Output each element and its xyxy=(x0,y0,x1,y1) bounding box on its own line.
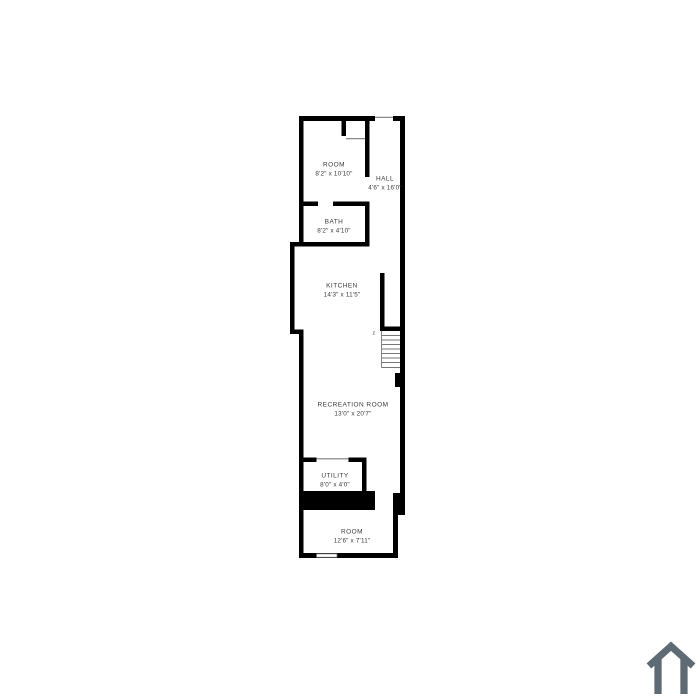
floorplan-canvas: z ROOM 8'2" x 10'10" HALL 4'6" x 16'0" B… xyxy=(0,0,700,700)
wall-left-upper xyxy=(299,116,304,247)
wall-room-hall-divider-lower xyxy=(365,202,370,247)
room-name: UTILITY xyxy=(320,473,350,482)
room-name: ROOM xyxy=(334,529,371,538)
wall-utility-right xyxy=(362,458,367,492)
stair-treads xyxy=(382,331,401,368)
wall-left-middle xyxy=(299,330,304,492)
room-name: RECREATION ROOM xyxy=(318,402,389,411)
room-label-recreation: RECREATION ROOM 13'0" x 20'7" xyxy=(318,402,389,419)
room-name: ROOM xyxy=(315,162,352,171)
room-dims: 14'3" x 11'5" xyxy=(324,291,361,300)
wall-left-lower xyxy=(299,510,304,558)
floorplan-drawing: z xyxy=(0,0,700,700)
wall-room-bath-left xyxy=(299,202,318,207)
wall-left-kitchen-jut xyxy=(290,242,295,334)
wall-closet-stub xyxy=(342,116,347,136)
wall-utility-top-left xyxy=(304,458,317,463)
room-label-bedroom-top: ROOM 8'2" x 10'10" xyxy=(315,162,352,179)
room-name: HALL xyxy=(368,176,401,185)
stair-direction-mark: z xyxy=(373,331,376,337)
wall-stair-landing-bottom xyxy=(380,327,400,332)
wall-right-lower xyxy=(393,515,398,558)
room-label-hall: HALL 4'6" x 16'0" xyxy=(368,176,401,193)
room-dims: 8'2" x 10'10" xyxy=(315,170,352,179)
room-label-bath: BATH 8'2" x 4'10" xyxy=(317,219,350,236)
room-dims: 13'0" x 20'7" xyxy=(318,410,389,419)
wall-right-upper xyxy=(400,116,405,493)
room-name: KITCHEN xyxy=(324,283,361,292)
wall-band-below-utility xyxy=(299,491,375,510)
wall-room-bath-right xyxy=(333,202,368,207)
house-right-wall xyxy=(680,658,687,694)
room-label-kitchen: KITCHEN 14'3" x 11'5" xyxy=(324,283,361,300)
wall-right-jog xyxy=(393,493,405,515)
room-dims: 12'6" x 7'11" xyxy=(334,537,371,546)
room-dims: 8'0" x 4'0" xyxy=(320,481,350,490)
chimney-breast xyxy=(395,373,400,387)
window-bottom xyxy=(317,554,338,558)
wall-bottom xyxy=(299,553,398,558)
wall-room-hall-divider-upper xyxy=(365,116,370,177)
room-dims: 8'2" x 4'10" xyxy=(317,227,350,236)
house-roof xyxy=(647,642,696,669)
room-name: BATH xyxy=(317,219,350,228)
house-icon xyxy=(646,640,696,694)
room-label-bedroom-bottom: ROOM 12'6" x 7'11" xyxy=(334,529,371,546)
room-label-utility: UTILITY 8'0" x 4'0" xyxy=(320,473,350,490)
wall-bath-bottom xyxy=(290,242,368,247)
wall-stair-left xyxy=(380,273,385,331)
room-dims: 4'6" x 16'0" xyxy=(368,184,401,193)
house-left-wall xyxy=(654,658,661,694)
wall-top-left xyxy=(299,116,375,121)
